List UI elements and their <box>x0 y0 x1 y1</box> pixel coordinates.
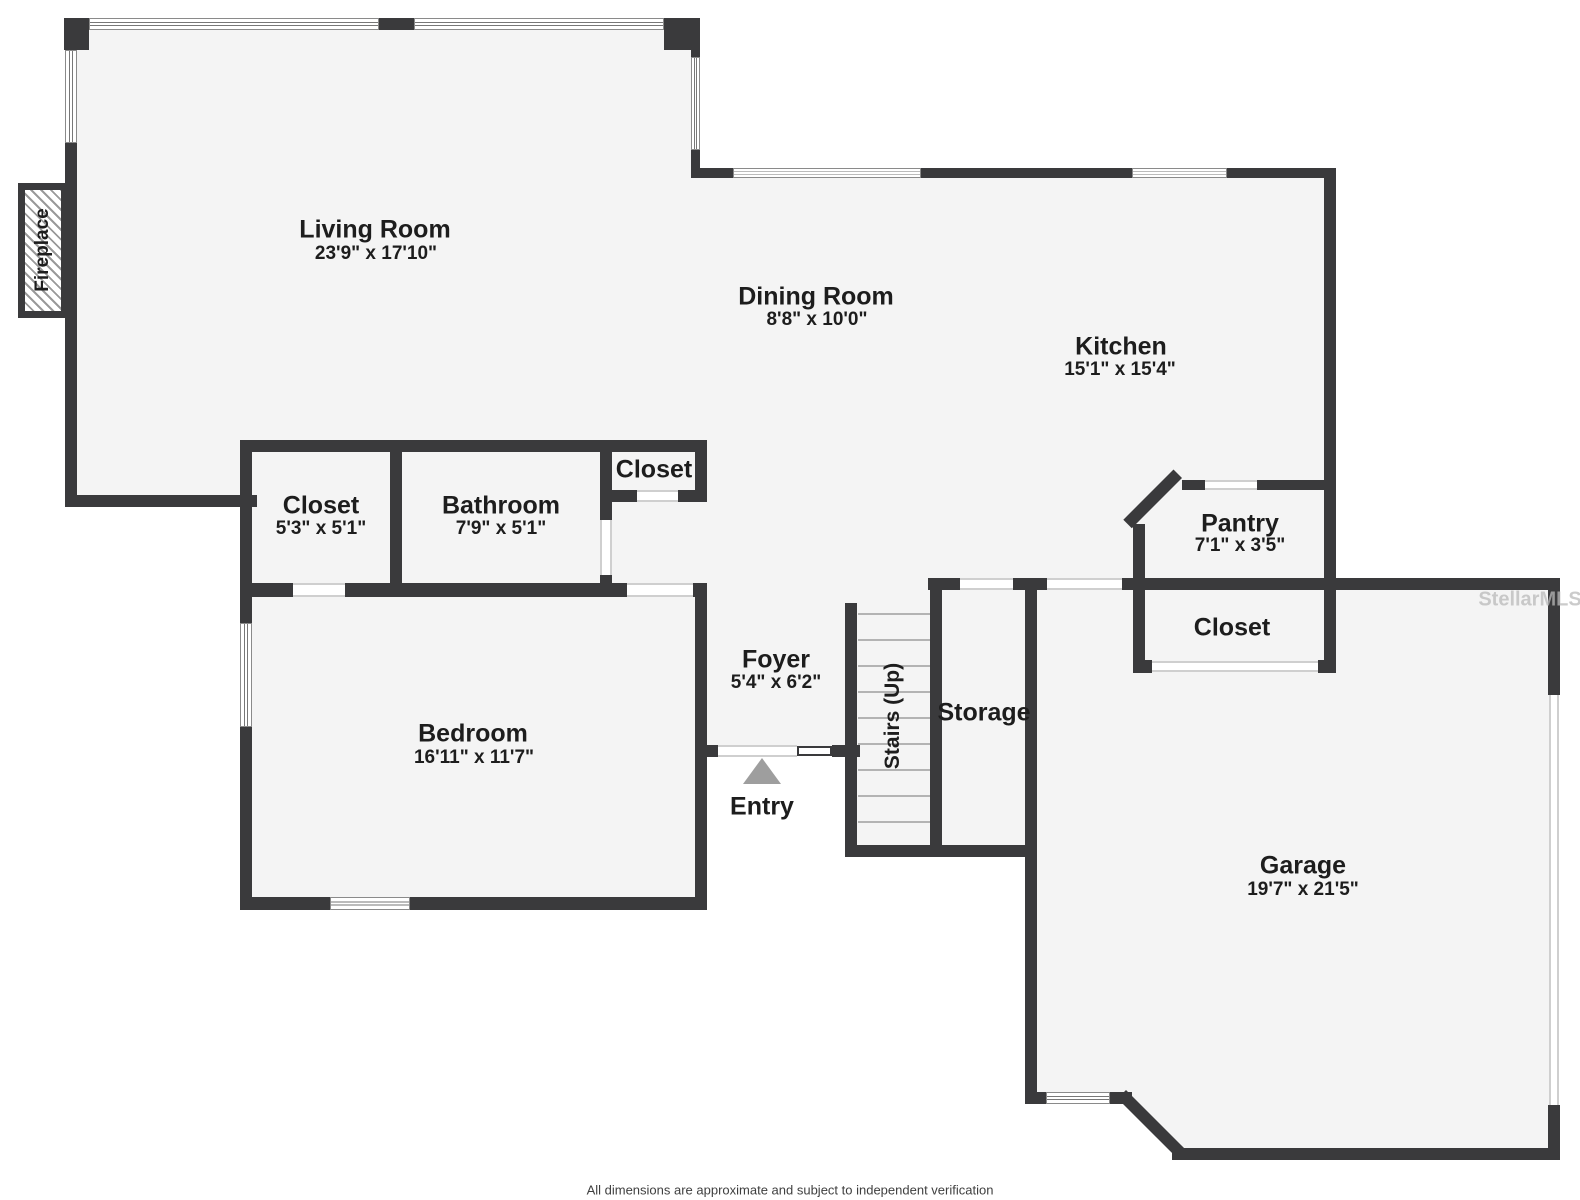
foyer-label: Foyer <box>742 646 810 675</box>
wall <box>700 168 733 178</box>
wall <box>240 440 707 452</box>
wall <box>64 18 89 50</box>
wall <box>921 168 1132 178</box>
wall <box>379 18 414 30</box>
wall <box>845 603 857 845</box>
fireplace-label: Fireplace <box>32 208 54 291</box>
kitchen-label: Kitchen <box>1075 333 1167 362</box>
wall <box>695 745 718 757</box>
kitchen-dims: 15'1" x 15'4" <box>1064 359 1176 381</box>
storage-label: Storage <box>937 699 1030 728</box>
wall <box>390 452 402 583</box>
bedroom-door-opening <box>627 583 693 597</box>
wall <box>600 452 612 520</box>
stairs-label: Stairs (Up) <box>881 663 905 769</box>
wall <box>240 583 293 597</box>
bathroom-door-opening <box>600 520 612 575</box>
wall <box>1025 1092 1046 1104</box>
wall <box>1257 480 1324 490</box>
garage-hall-opening <box>1047 578 1122 590</box>
wall <box>691 150 700 178</box>
stair-tread <box>858 613 930 615</box>
wall <box>65 495 257 507</box>
garage-label: Garage <box>1260 852 1346 881</box>
living-room-label: Living Room <box>299 216 450 245</box>
wall <box>1013 578 1047 590</box>
bathroom-label: Bathroom <box>442 492 560 521</box>
wall <box>612 490 637 502</box>
wall <box>832 745 860 757</box>
dining-room-dims: 8'8" x 10'0" <box>766 309 867 331</box>
wall <box>1182 480 1205 490</box>
storage-door-opening <box>960 578 1013 590</box>
wall <box>1324 168 1336 673</box>
floor-plan: Fireplace Living Room 23'9" x 17'10" Din… <box>0 0 1580 1200</box>
dining-room-label: Dining Room <box>738 283 894 312</box>
hall-closet-opening <box>637 490 678 502</box>
wall <box>845 845 1037 857</box>
bathroom-dims: 7'9" x 5'1" <box>456 518 546 540</box>
entry-arrow-icon <box>743 758 781 784</box>
pantry-dims: 7'1" x 3'5" <box>1195 535 1285 557</box>
bedroom-label: Bedroom <box>418 720 528 749</box>
window <box>1132 168 1227 178</box>
window <box>240 623 252 727</box>
bedroom-closet-label: Closet <box>283 492 359 521</box>
window <box>89 18 379 30</box>
stair-tread <box>858 769 930 771</box>
stair-tread <box>858 821 930 823</box>
garage-door-opening <box>1549 695 1559 1105</box>
wall <box>410 897 707 910</box>
entry-door-leaf <box>797 746 832 756</box>
wall <box>1318 660 1336 673</box>
wall <box>691 30 700 57</box>
wall <box>1025 857 1037 1104</box>
window <box>330 897 410 910</box>
garage-closet-label: Closet <box>1194 614 1270 643</box>
living-room-dims: 23'9" x 17'10" <box>315 243 437 265</box>
window <box>733 168 921 178</box>
bedroom-dims: 16'11" x 11'7" <box>414 747 534 769</box>
wall <box>1133 660 1152 673</box>
window <box>414 18 664 30</box>
wall <box>1172 1148 1560 1160</box>
stair-tread <box>858 795 930 797</box>
garage-dims: 19'7" x 21'5" <box>1247 879 1359 901</box>
wall <box>1227 168 1334 178</box>
bedroom-closet-opening <box>293 583 345 597</box>
wall <box>240 897 330 910</box>
wall <box>695 440 707 502</box>
entry-door-opening <box>718 745 797 757</box>
wall <box>1548 1105 1560 1160</box>
stair-tread <box>858 639 930 641</box>
window <box>65 50 77 143</box>
wall <box>928 578 960 590</box>
wall <box>345 583 627 597</box>
foyer-floor <box>701 452 851 751</box>
entry-label: Entry <box>730 793 794 822</box>
foyer-dims: 5'4" x 6'2" <box>731 672 821 694</box>
window <box>1046 1092 1110 1104</box>
wall <box>240 452 252 597</box>
hall-closet-label: Closet <box>616 456 692 485</box>
pantry-door-opening <box>1205 480 1257 490</box>
wall <box>240 597 252 623</box>
disclaimer-text: All dimensions are approximate and subje… <box>587 1183 994 1198</box>
watermark: StellarMLS <box>1478 589 1580 612</box>
window <box>691 57 700 150</box>
wall <box>240 727 252 897</box>
bedroom-closet-dims: 5'3" x 5'1" <box>276 518 366 540</box>
garage-closet-opening <box>1152 661 1318 672</box>
